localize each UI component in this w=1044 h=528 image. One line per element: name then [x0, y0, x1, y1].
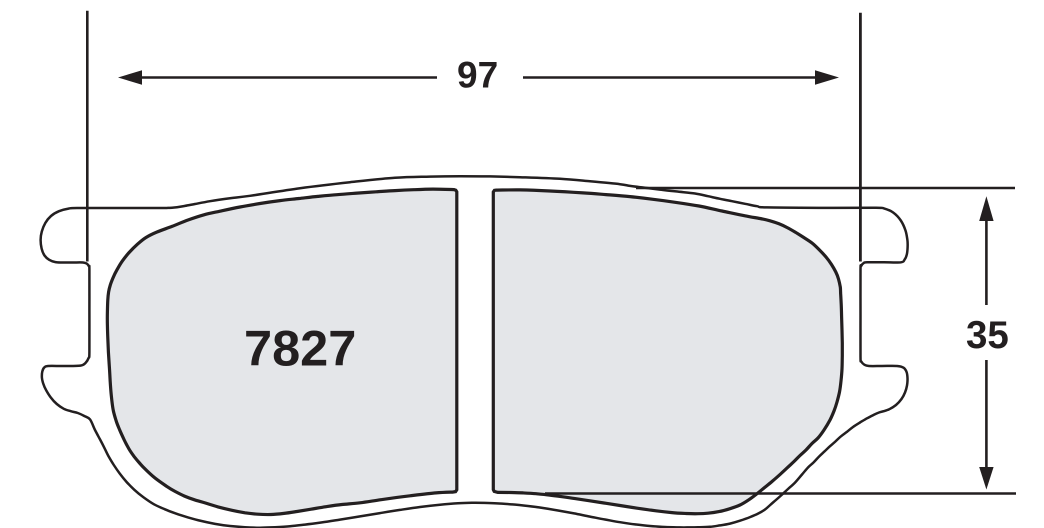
svg-text:35: 35 [966, 314, 1009, 357]
svg-text:7827: 7827 [244, 320, 356, 377]
svg-text:97: 97 [457, 54, 498, 95]
